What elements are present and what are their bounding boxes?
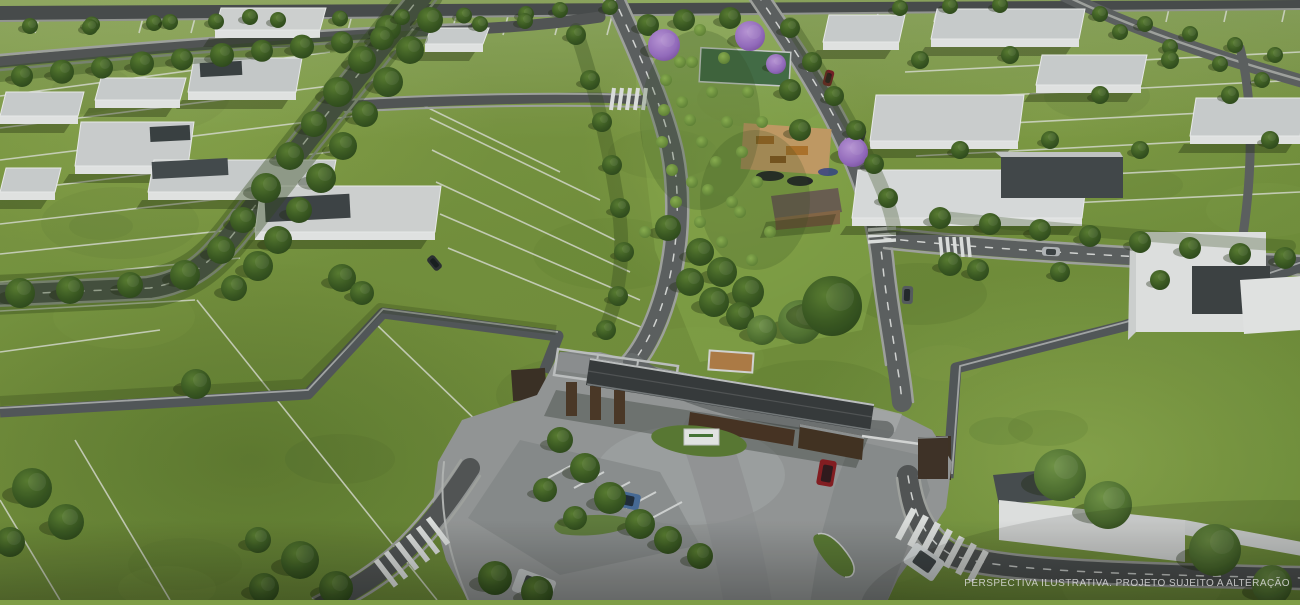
svg-text:PERSPECTIVA ILUSTRATIVA. PROJE: PERSPECTIVA ILUSTRATIVA. PROJETO SUJEITO… (964, 576, 1290, 589)
